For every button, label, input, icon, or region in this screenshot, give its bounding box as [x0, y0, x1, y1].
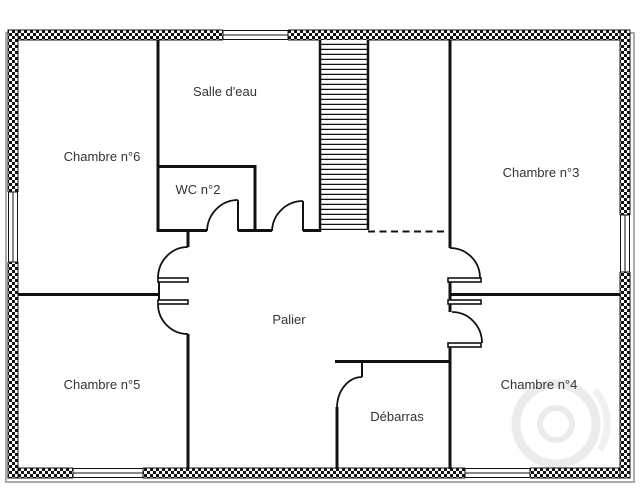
window — [223, 30, 288, 41]
door-arc — [158, 304, 188, 334]
window — [465, 468, 530, 479]
outer-wall-top — [8, 30, 630, 40]
door-arc — [207, 200, 238, 231]
room-chambre-3: Chambre n°3 — [503, 165, 580, 180]
door-arc — [272, 201, 303, 231]
door-jamb — [448, 343, 481, 347]
door-jamb — [448, 278, 481, 282]
door-arc — [452, 312, 482, 343]
door-jamb — [158, 278, 188, 282]
watermark — [516, 384, 607, 464]
door-jambs — [158, 278, 481, 347]
room-label: Chambre n°5 — [64, 377, 141, 392]
room-salle-deau: Salle d'eau — [193, 84, 257, 99]
room-chambre-4: Chambre n°4 — [501, 377, 578, 392]
door-arc — [337, 377, 362, 408]
room-label: WC n°2 — [176, 182, 221, 197]
room-debarras: Débarras — [370, 409, 424, 424]
door-jamb — [158, 300, 188, 304]
door-jamb — [448, 300, 481, 304]
window — [73, 468, 143, 479]
room-palier: Palier — [272, 312, 306, 327]
window — [620, 215, 631, 272]
door-arc — [158, 247, 188, 278]
door-arc — [450, 248, 480, 278]
room-label: Débarras — [370, 409, 424, 424]
room-label: Chambre n°6 — [64, 149, 141, 164]
room-wc-2: WC n°2 — [176, 182, 221, 197]
staircase — [320, 40, 368, 232]
room-label: Chambre n°4 — [501, 377, 578, 392]
room-label: Salle d'eau — [193, 84, 257, 99]
floor-plan-page: Salle d'eau Chambre n°6 WC n°2 Chambre n… — [0, 0, 640, 490]
room-label: Chambre n°3 — [503, 165, 580, 180]
room-chambre-5: Chambre n°5 — [64, 377, 141, 392]
room-label: Palier — [272, 312, 306, 327]
window — [8, 192, 19, 262]
room-chambre-6: Chambre n°6 — [64, 149, 141, 164]
floor-plan: Salle d'eau Chambre n°6 WC n°2 Chambre n… — [0, 0, 640, 490]
